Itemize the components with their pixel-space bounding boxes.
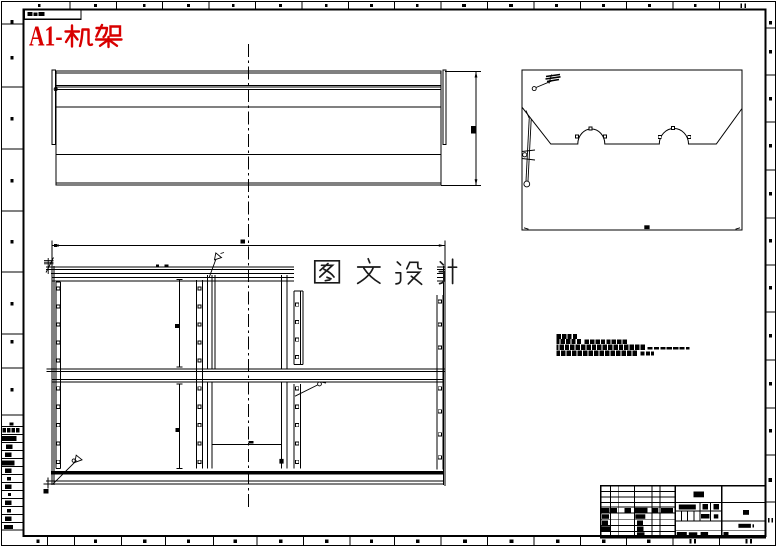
- svg-text:A1-: A1-: [29, 22, 63, 53]
